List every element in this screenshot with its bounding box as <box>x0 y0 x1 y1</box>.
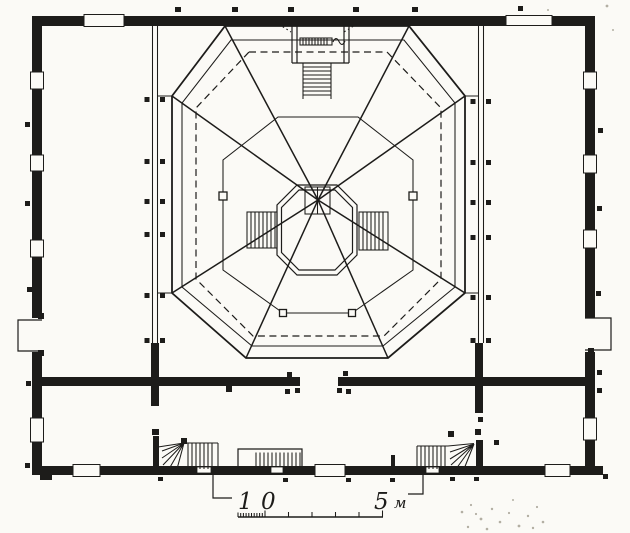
transverse-wall-left <box>42 377 300 386</box>
bay-corner-dot <box>38 350 44 356</box>
bay-corner-dot <box>588 311 594 317</box>
window <box>31 155 44 171</box>
window <box>506 16 552 26</box>
scale-label-one: 1 <box>238 489 253 515</box>
scanned-plan-page: 1 0 5 м <box>0 0 630 533</box>
threshold-slot <box>271 467 283 473</box>
bottom-wall-foot <box>40 474 52 480</box>
bay-corner-dot <box>38 313 44 319</box>
window <box>315 465 345 477</box>
central-lantern <box>247 185 388 275</box>
upper-stair <box>268 17 368 99</box>
right-inner-wall-thick <box>475 343 483 413</box>
floor-plan-drawing: 1 0 5 м <box>0 0 630 533</box>
scale-label-zero: 0 <box>261 489 276 515</box>
window <box>584 418 597 440</box>
wall-dots <box>25 6 608 479</box>
scale-leader-right <box>408 474 423 494</box>
window <box>84 15 124 27</box>
left-inner-wall <box>153 26 158 343</box>
right-wall-lower <box>585 352 595 475</box>
left-inner-wall-thick <box>151 343 159 406</box>
window <box>584 230 597 248</box>
roof-post <box>409 192 417 200</box>
inner-colonnade <box>145 26 492 422</box>
window <box>584 155 597 173</box>
window <box>31 240 44 257</box>
post-tick <box>391 455 395 466</box>
window <box>584 72 597 89</box>
window <box>545 465 570 477</box>
wall-windows <box>31 15 597 477</box>
window <box>31 72 44 89</box>
break-squiggle <box>333 39 345 45</box>
left-wall-lower <box>32 352 42 475</box>
upper-stair-treads <box>303 67 331 95</box>
lantern-stair-left <box>247 212 277 248</box>
window <box>31 418 44 442</box>
bay-corner-dot <box>588 348 594 354</box>
lantern-stair-right <box>359 212 388 250</box>
roof-post <box>349 310 356 317</box>
scale-label-unit: м <box>394 494 406 512</box>
right-bay <box>585 318 611 350</box>
transverse-wall-right <box>338 377 585 386</box>
scale-leader-left <box>213 474 232 498</box>
right-inner-wall <box>479 26 484 343</box>
scale-label-five: 5 <box>374 489 389 515</box>
outer-walls <box>18 16 611 480</box>
scale-meter-ticks <box>265 511 383 518</box>
roof-hip-radials <box>172 26 465 358</box>
roof-eave-octagon <box>172 26 465 358</box>
roof-post <box>219 192 227 200</box>
window <box>73 465 100 477</box>
roof-post <box>280 310 287 317</box>
left-bay <box>18 320 42 351</box>
